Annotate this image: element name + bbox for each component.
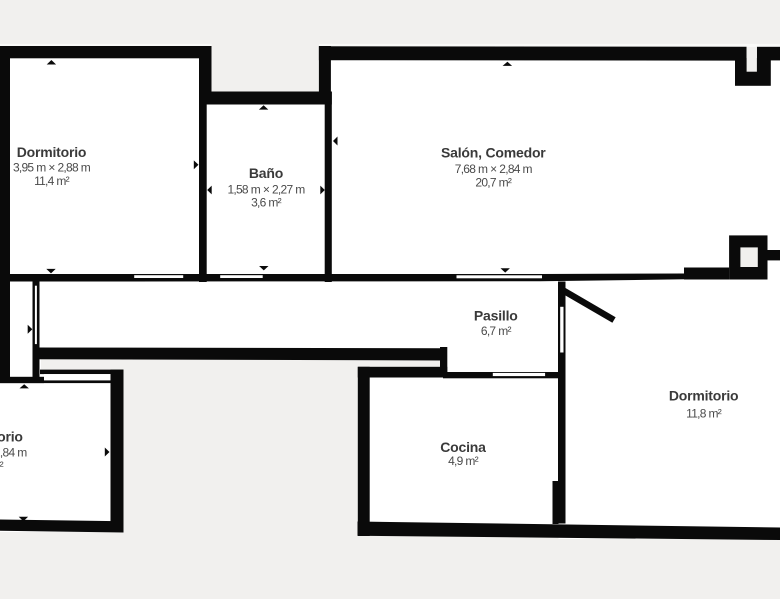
svg-text:6,7 m²: 6,7 m² bbox=[481, 324, 512, 338]
svg-text:11,8 m²: 11,8 m² bbox=[686, 407, 722, 421]
svg-text:Pasillo: Pasillo bbox=[474, 308, 518, 324]
svg-text:Dormitorio: Dormitorio bbox=[17, 144, 87, 160]
svg-text:Salón, Comedor: Salón, Comedor bbox=[441, 145, 546, 161]
svg-text:Dormitorio: Dormitorio bbox=[669, 388, 739, 404]
svg-text:Dormitorio: Dormitorio bbox=[0, 429, 23, 445]
svg-text:4,9 m²: 4,9 m² bbox=[448, 454, 479, 468]
svg-text:3,6 m²: 3,6 m² bbox=[251, 196, 282, 210]
svg-text:1,58 m × 2,27 m: 1,58 m × 2,27 m bbox=[228, 183, 306, 197]
svg-text:20,7 m²: 20,7 m² bbox=[475, 175, 511, 189]
svg-text:7,68 m × 2,84 m: 7,68 m × 2,84 m bbox=[455, 162, 533, 176]
svg-text:3,95 m × 2,88 m: 3,95 m × 2,88 m bbox=[13, 161, 91, 175]
svg-text:2,97 m × 2,84 m: 2,97 m × 2,84 m bbox=[0, 446, 27, 460]
svg-text:Baño: Baño bbox=[249, 165, 283, 181]
svg-text:11,4 m²: 11,4 m² bbox=[34, 174, 70, 188]
svg-text:Cocina: Cocina bbox=[440, 439, 486, 455]
